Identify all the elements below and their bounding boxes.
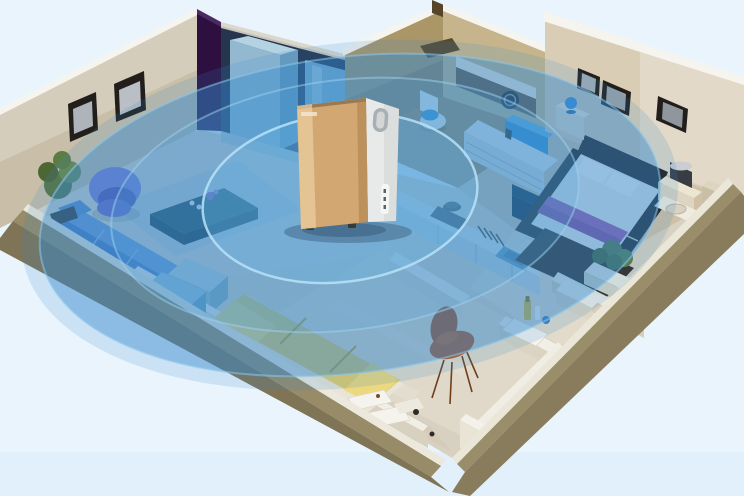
small-object <box>413 409 419 415</box>
device-side <box>366 98 399 222</box>
small-object <box>430 432 435 437</box>
device-front-panel <box>297 98 368 229</box>
illustration-stage <box>0 0 744 496</box>
brand-mark-icon <box>301 112 317 116</box>
apartment-coverage-illustration <box>0 0 744 496</box>
control-strip <box>380 184 389 214</box>
